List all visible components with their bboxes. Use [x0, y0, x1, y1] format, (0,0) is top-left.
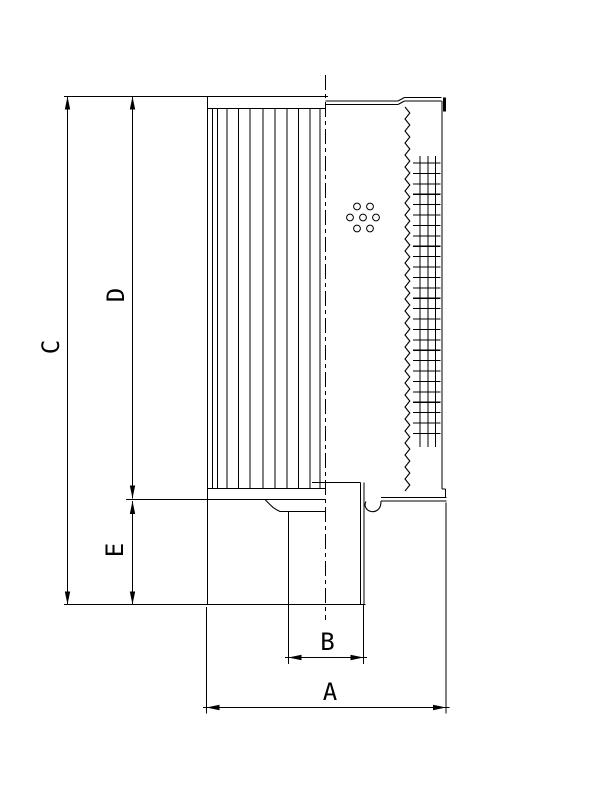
perforation-hole: [367, 203, 374, 210]
arrowhead-a-right: [433, 705, 446, 710]
bottom-port: [312, 483, 364, 605]
perforation-hole: [347, 214, 354, 221]
flange-break-squiggle: [365, 501, 381, 512]
arrowhead-e-bottom: [130, 592, 135, 605]
dim-label-d: D: [102, 288, 130, 302]
flange-step-diagonal-1: [398, 98, 405, 102]
perforation-hole: [373, 214, 380, 221]
drawing-page: C D E B A: [0, 0, 612, 792]
arrowhead-b-right: [351, 655, 364, 660]
arrowhead-b-left: [289, 655, 302, 660]
spring-seam-zigzag: [405, 107, 410, 491]
bottom-cap-fillet: [265, 500, 326, 512]
dim-label-a: A: [323, 678, 338, 706]
arrowhead-e-top: [130, 501, 135, 514]
perforation-hole: [360, 214, 367, 221]
outer-shell-view: [326, 98, 447, 512]
perforation-holes: [347, 203, 380, 232]
technical-drawing: C D E B A: [0, 0, 612, 792]
perforation-hole: [354, 203, 361, 210]
perforation-hole: [367, 225, 374, 232]
dimension-annotations: C D E B A: [37, 97, 450, 714]
dim-label-e: E: [101, 543, 129, 557]
arrowhead-c-top: [65, 97, 70, 110]
flange-step-diagonal-2: [398, 101, 405, 105]
pleat-lines-group: [213, 109, 321, 489]
dim-label-c: C: [37, 340, 65, 354]
arrowhead-a-left: [207, 705, 220, 710]
wire-mesh-grid: [413, 156, 441, 447]
arrowhead-d-bottom: [130, 486, 135, 499]
perforation-hole: [354, 225, 361, 232]
arrowhead-c-bottom: [65, 592, 70, 605]
arrowhead-d-top: [130, 97, 135, 110]
filter-element-section: [64, 97, 366, 605]
dim-label-b: B: [320, 628, 334, 656]
